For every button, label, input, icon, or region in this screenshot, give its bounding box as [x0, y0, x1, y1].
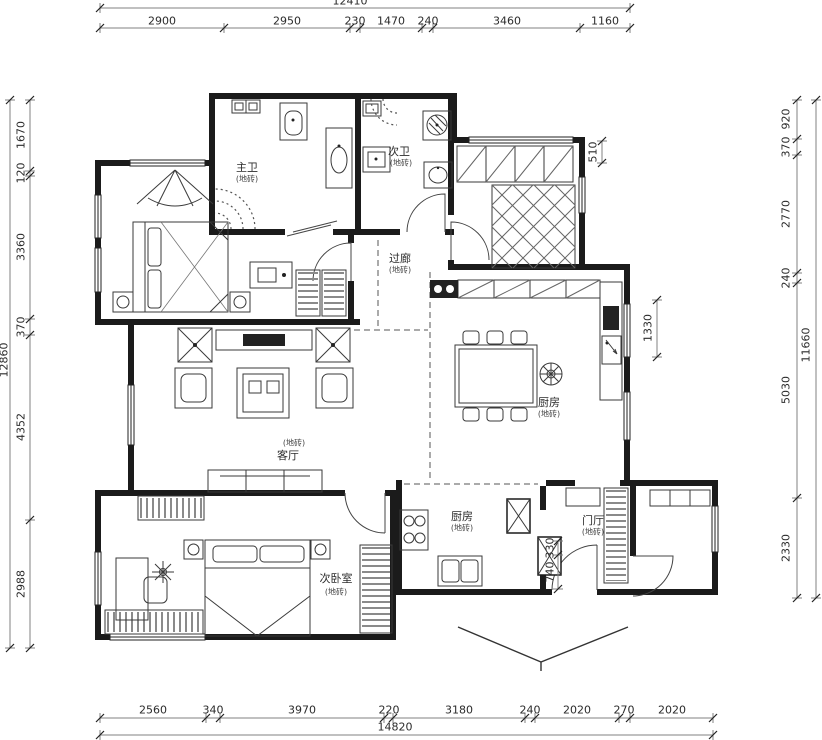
- dim-right-seg-0: 920: [780, 109, 793, 130]
- room-finish-second-bath: (地砖): [390, 158, 412, 169]
- dim-top-seg-0: 2900: [148, 15, 176, 28]
- dim-bottom-seg-5: 240: [520, 704, 541, 717]
- dim-bottom-total: 14820: [378, 721, 413, 734]
- dim-bottom-seg-2: 3970: [288, 704, 316, 717]
- dim-left-seg-5: 2988: [15, 570, 28, 598]
- dashed-lines-layer: [354, 240, 538, 484]
- dim-top-seg-6: 1160: [591, 15, 619, 28]
- dim-top-seg-5: 3460: [493, 15, 521, 28]
- dim-bottom-seg-8: 2020: [658, 704, 686, 717]
- room-finish-corridor: (地砖): [389, 265, 411, 276]
- room-name-living: 客厅: [277, 447, 299, 463]
- dim-interior-1330: 1330: [642, 314, 655, 342]
- bottom-right-room: [650, 490, 710, 506]
- dim-top-seg-2: 230: [345, 15, 366, 28]
- room-finish-entry: (地砖): [582, 527, 604, 538]
- living-room-furniture: [175, 328, 353, 492]
- entry-direction-chevron: [458, 627, 628, 671]
- room-finish-master-bath: (地砖): [236, 174, 258, 185]
- dim-right-seg-2: 2770: [780, 200, 793, 228]
- dim-top-seg-4: 240: [418, 15, 439, 28]
- floor-plan-drawing: [0, 0, 822, 740]
- entry-hall-fixtures: [507, 488, 628, 583]
- doors-layer: [287, 194, 673, 596]
- room-finish-dining: (地砖): [538, 409, 560, 420]
- dim-right-total: 11660: [800, 328, 813, 363]
- dim-bottom-seg-6: 2020: [563, 704, 591, 717]
- dim-left-total: 12860: [0, 343, 11, 378]
- dim-right-seg-3: 240: [780, 268, 793, 289]
- dim-bottom-seg-1: 340: [203, 704, 224, 717]
- dim-bottom-seg-7: 270: [614, 704, 635, 717]
- dim-interior-330: 330: [544, 538, 557, 559]
- dimension-lines-layer: [5, 3, 821, 740]
- dim-top-seg-1: 2950: [273, 15, 301, 28]
- dim-interior-510: 510: [587, 142, 600, 163]
- dim-right-seg-4: 5030: [780, 376, 793, 404]
- dim-left-seg-4: 4352: [15, 413, 28, 441]
- dim-left-seg-1: 120: [15, 163, 28, 184]
- dim-interior-740: 740: [544, 562, 557, 583]
- room-finish-kitchen: (地砖): [451, 523, 473, 534]
- dim-left-seg-2: 3360: [15, 233, 28, 261]
- dim-bottom-seg-3: 220: [379, 704, 400, 717]
- dim-top-total: 12410: [333, 0, 368, 8]
- room-finish-second-bedroom: (地砖): [325, 587, 347, 598]
- dim-left-seg-0: 1670: [15, 121, 28, 149]
- dim-right-seg-1: 370: [780, 137, 793, 158]
- room-name-second-bedroom: 次卧室: [320, 570, 353, 586]
- dim-bottom-seg-4: 3180: [445, 704, 473, 717]
- second-bedroom-furniture: [105, 496, 392, 636]
- dim-left-seg-3: 370: [15, 317, 28, 338]
- top-right-room: [457, 146, 575, 268]
- dim-top-seg-3: 1470: [377, 15, 405, 28]
- dining-furniture: [430, 280, 622, 421]
- dim-right-seg-5: 2330: [780, 534, 793, 562]
- dim-bottom-seg-0: 2560: [139, 704, 167, 717]
- master-bedroom-furniture: [113, 170, 346, 316]
- floor-plan-canvas: 12410 2900 2950 230 1470 240 3460 1160 2…: [0, 0, 822, 740]
